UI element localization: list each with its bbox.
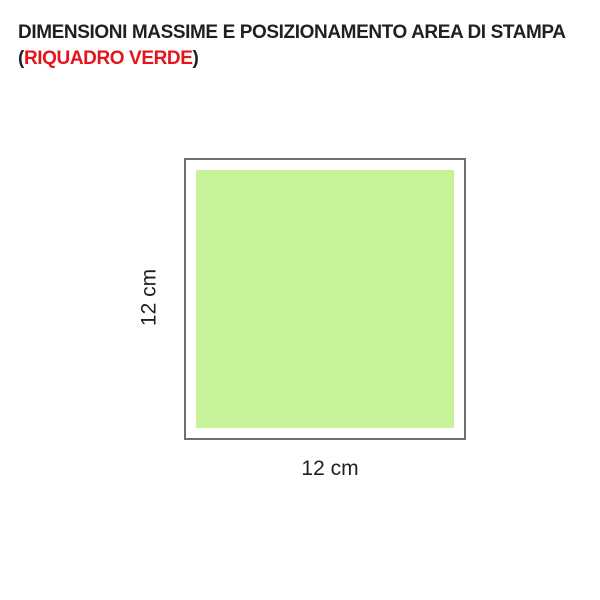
- page-title: DIMENSIONI MASSIME E POSIZIONAMENTO AREA…: [18, 20, 590, 72]
- title-line-2: (RIQUADRO VERDE): [18, 46, 590, 72]
- title-highlight: RIQUADRO VERDE: [24, 48, 193, 69]
- height-dimension-label: 12 cm: [136, 248, 163, 348]
- print-area-green-square: [196, 170, 454, 428]
- title-line-1: DIMENSIONI MASSIME E POSIZIONAMENTO AREA…: [18, 20, 590, 46]
- width-dimension-label: 12 cm: [189, 455, 471, 482]
- page: DIMENSIONI MASSIME E POSIZIONAMENTO AREA…: [0, 0, 600, 600]
- title-paren-close: ): [193, 48, 199, 69]
- max-dimensions-frame: [184, 158, 466, 440]
